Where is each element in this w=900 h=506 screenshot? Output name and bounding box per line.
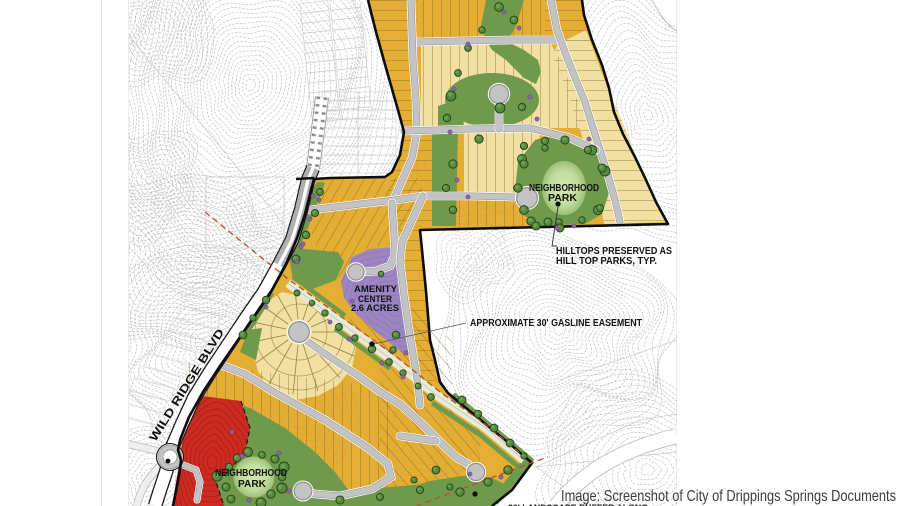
svg-text:2.6 ACRES: 2.6 ACRES: [351, 303, 399, 313]
svg-text:AMENITY: AMENITY: [354, 284, 397, 294]
svg-text:PARK: PARK: [238, 479, 266, 490]
svg-text:Image: Screenshot of City of D: Image: Screenshot of City of Drippings S…: [561, 488, 896, 505]
svg-text:APPROXIMATE 30' GASLINE EASEME: APPROXIMATE 30' GASLINE EASEMENT: [470, 318, 642, 329]
svg-text:PARK: PARK: [548, 193, 577, 204]
svg-text:NEIGHBORHOOD: NEIGHBORHOOD: [215, 468, 287, 479]
svg-text:HILL TOP PARKS, TYP.: HILL TOP PARKS, TYP.: [556, 256, 657, 267]
